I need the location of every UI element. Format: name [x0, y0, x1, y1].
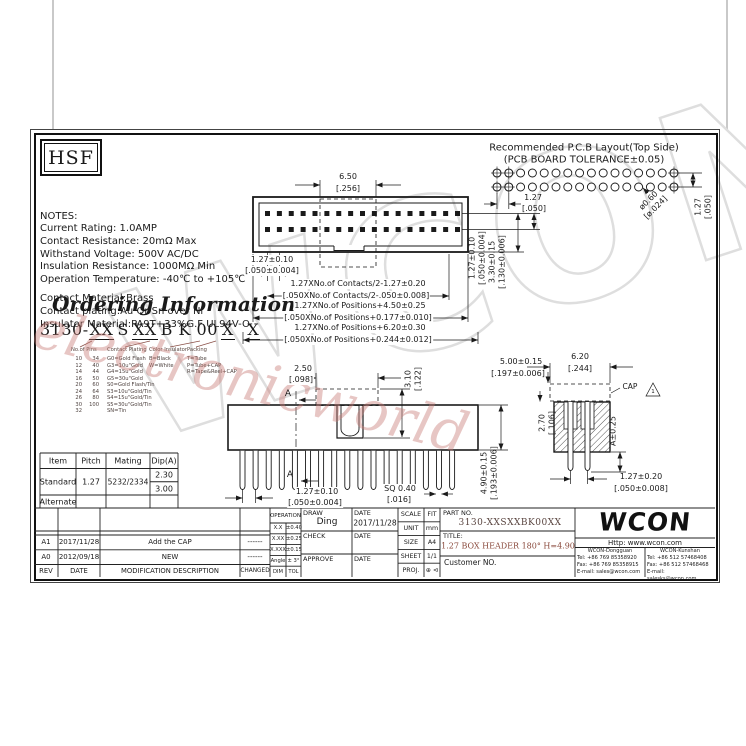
- scale-block: SCALE FIT UNIT mm SIZE A4 SHEET 1/1 PROJ…: [398, 508, 440, 577]
- scale-row: SIZE A4: [398, 536, 440, 550]
- dim-key-w-mm: 2.50: [293, 364, 313, 374]
- operation-header: OPERATION: [270, 508, 301, 523]
- customer-no-label: Customer NO.: [444, 558, 496, 567]
- draw-date-value: 2017/11/28: [353, 519, 396, 528]
- mating-header: Mating: [114, 457, 141, 466]
- pitch-value: 1.27: [82, 478, 100, 487]
- item-header: Item: [49, 457, 67, 466]
- dim-pcb-pitch-in: [.050]: [522, 204, 546, 214]
- section-mark-a-bottom: A: [287, 470, 293, 480]
- approve-label: APPROVE: [303, 555, 333, 563]
- dip-value-1: 2.30: [155, 471, 173, 480]
- draw-name: Ding: [317, 517, 338, 527]
- dim-chainB-in: [.050XNo.of Positions+0.177±0.010]: [283, 313, 433, 323]
- draw-label: DRAW: [303, 509, 323, 517]
- dim-sq-in: [.016]: [386, 495, 412, 505]
- branch-contact: WCON-Kunshan Tel: +86 512 57468408 Fax: …: [645, 548, 715, 583]
- company-url: Http: www.wcon.com: [608, 539, 682, 547]
- dim-key-w-in: [.098]: [288, 375, 314, 385]
- dim-cap-h-in: [.197±0.006]: [491, 369, 545, 379]
- datasheet-page: WCON: [0, 0, 746, 746]
- tolerance-row: X.XX ±0.25: [270, 534, 301, 545]
- part-no-value: 3130-XXSXXBK00XX: [458, 518, 561, 528]
- dim-tv-height: 3.30±0.15 [.130±0.006]: [488, 235, 507, 289]
- pcb-layout: [484, 167, 702, 210]
- dim-tv-pitch-mm: 1.27±0.10: [250, 255, 294, 265]
- approve-date-label: DATE: [354, 555, 371, 563]
- section-mark-a-top: A: [285, 389, 291, 399]
- dim-tv-pitch-in: [.050±0.004]: [244, 266, 300, 276]
- title-value: 1.27 BOX HEADER 180° H=4.90: [441, 542, 575, 551]
- dim-sv-w-mm: 6.20: [570, 352, 590, 362]
- wcon-logo: WCON: [597, 508, 692, 537]
- dim-tail: A±0.25: [608, 416, 618, 446]
- dip-value-2: 3.00: [155, 484, 173, 493]
- drawing-canvas: [0, 0, 746, 746]
- dim-chainA-mm: 1.27XNo.of Contacts/2-1.27±0.20: [289, 279, 426, 289]
- tolerance-row: Angle ± 3°: [270, 555, 301, 566]
- scale-row: PROJ. ⊕ ⊲: [398, 563, 440, 577]
- mating-value: 5232/2334: [108, 478, 149, 487]
- pitch-header: Pitch: [81, 457, 100, 466]
- dim-pcb-row: 1.27 [.050]: [694, 195, 713, 219]
- scale-row: SHEET 1/1: [398, 549, 440, 563]
- dim-chainC-in: [.050XNo.of Positions+0.244±0.012]: [283, 335, 433, 345]
- revision-row: A0 2012/09/18 NEW ------: [34, 550, 270, 565]
- dim-fv-pitch-in: [.050±0.004]: [287, 498, 343, 508]
- check-label: CHECK: [303, 532, 325, 540]
- dim-pcb-pitch-mm: 1.27: [524, 193, 542, 203]
- dip-header: Dip(A): [151, 457, 176, 466]
- cap-triangle-note: 1: [651, 387, 655, 397]
- title-label: TITLE:: [443, 532, 463, 540]
- dim-cap-width-mm: 6.50: [338, 172, 358, 182]
- dim-cap-h-mm: 5.00±0.15: [500, 357, 542, 367]
- dim-sv-pitch-mm: 1.27±0.20: [620, 472, 662, 482]
- dim-sv-pitch-in: [.050±0.008]: [614, 484, 668, 494]
- draw-date-label: DATE: [354, 509, 371, 517]
- scale-row: SCALE FIT: [398, 508, 440, 522]
- revision-row: A1 2017/11/28 Add the CAP ------: [34, 535, 270, 550]
- item-standard: Standard: [40, 478, 76, 487]
- dim-fv-height: 4.90±0.15 [.193±0.006]: [480, 446, 499, 500]
- branch-contact: WCON-Dongguan Tel: +86 769 85358920 Fax:…: [575, 548, 645, 583]
- dim-chainB-mm: 1.27XNo.of Positions+4.50±0.25: [293, 301, 426, 311]
- dim-depth: 2.70 [.106]: [538, 411, 557, 435]
- dim-tv-row: 1.27±0.10 [.050±0.004]: [468, 231, 487, 285]
- dim-chainC-mm: 1.27XNo.of Positions+6.20±0.30: [293, 323, 426, 333]
- item-alternate: Alternate: [40, 497, 77, 506]
- tolerance-row: DIM TOL: [270, 566, 301, 577]
- tolerance-rows: X.X ±0.40 X.XX ±0.25 X.XXX ±0.15 Angle ±…: [270, 523, 301, 577]
- dim-sv-w-in: [.244]: [567, 364, 593, 374]
- part-no-label: PART NO.: [443, 509, 473, 517]
- scale-row: UNIT mm: [398, 522, 440, 536]
- dim-fv-pitch-mm: 1.27±0.10: [295, 487, 339, 497]
- check-date-label: DATE: [354, 532, 371, 540]
- ordering-leader-lines: [80, 341, 216, 347]
- tolerance-row: X.XXX ±0.15: [270, 545, 301, 556]
- revision-rows: A1 2017/11/28 Add the CAP ------ A0 2012…: [34, 535, 270, 565]
- revision-header-row: REV DATE MODIFICATION DESCRIPTION CHANGE…: [34, 565, 270, 578]
- front-view: [225, 373, 508, 503]
- dim-chainA-in: [.050XNo.of Contacts/2-.050±0.008]: [282, 291, 430, 301]
- dim-sq-mm: SQ 0.40: [383, 484, 417, 494]
- dim-cap-width-in: [.256]: [335, 184, 361, 194]
- cap-label: CAP: [623, 382, 638, 392]
- company-branches: WCON-Dongguan Tel: +86 769 85358920 Fax:…: [575, 548, 715, 583]
- tolerance-row: X.X ±0.40: [270, 523, 301, 534]
- dim-key-h: 3.10 [.122]: [404, 367, 423, 391]
